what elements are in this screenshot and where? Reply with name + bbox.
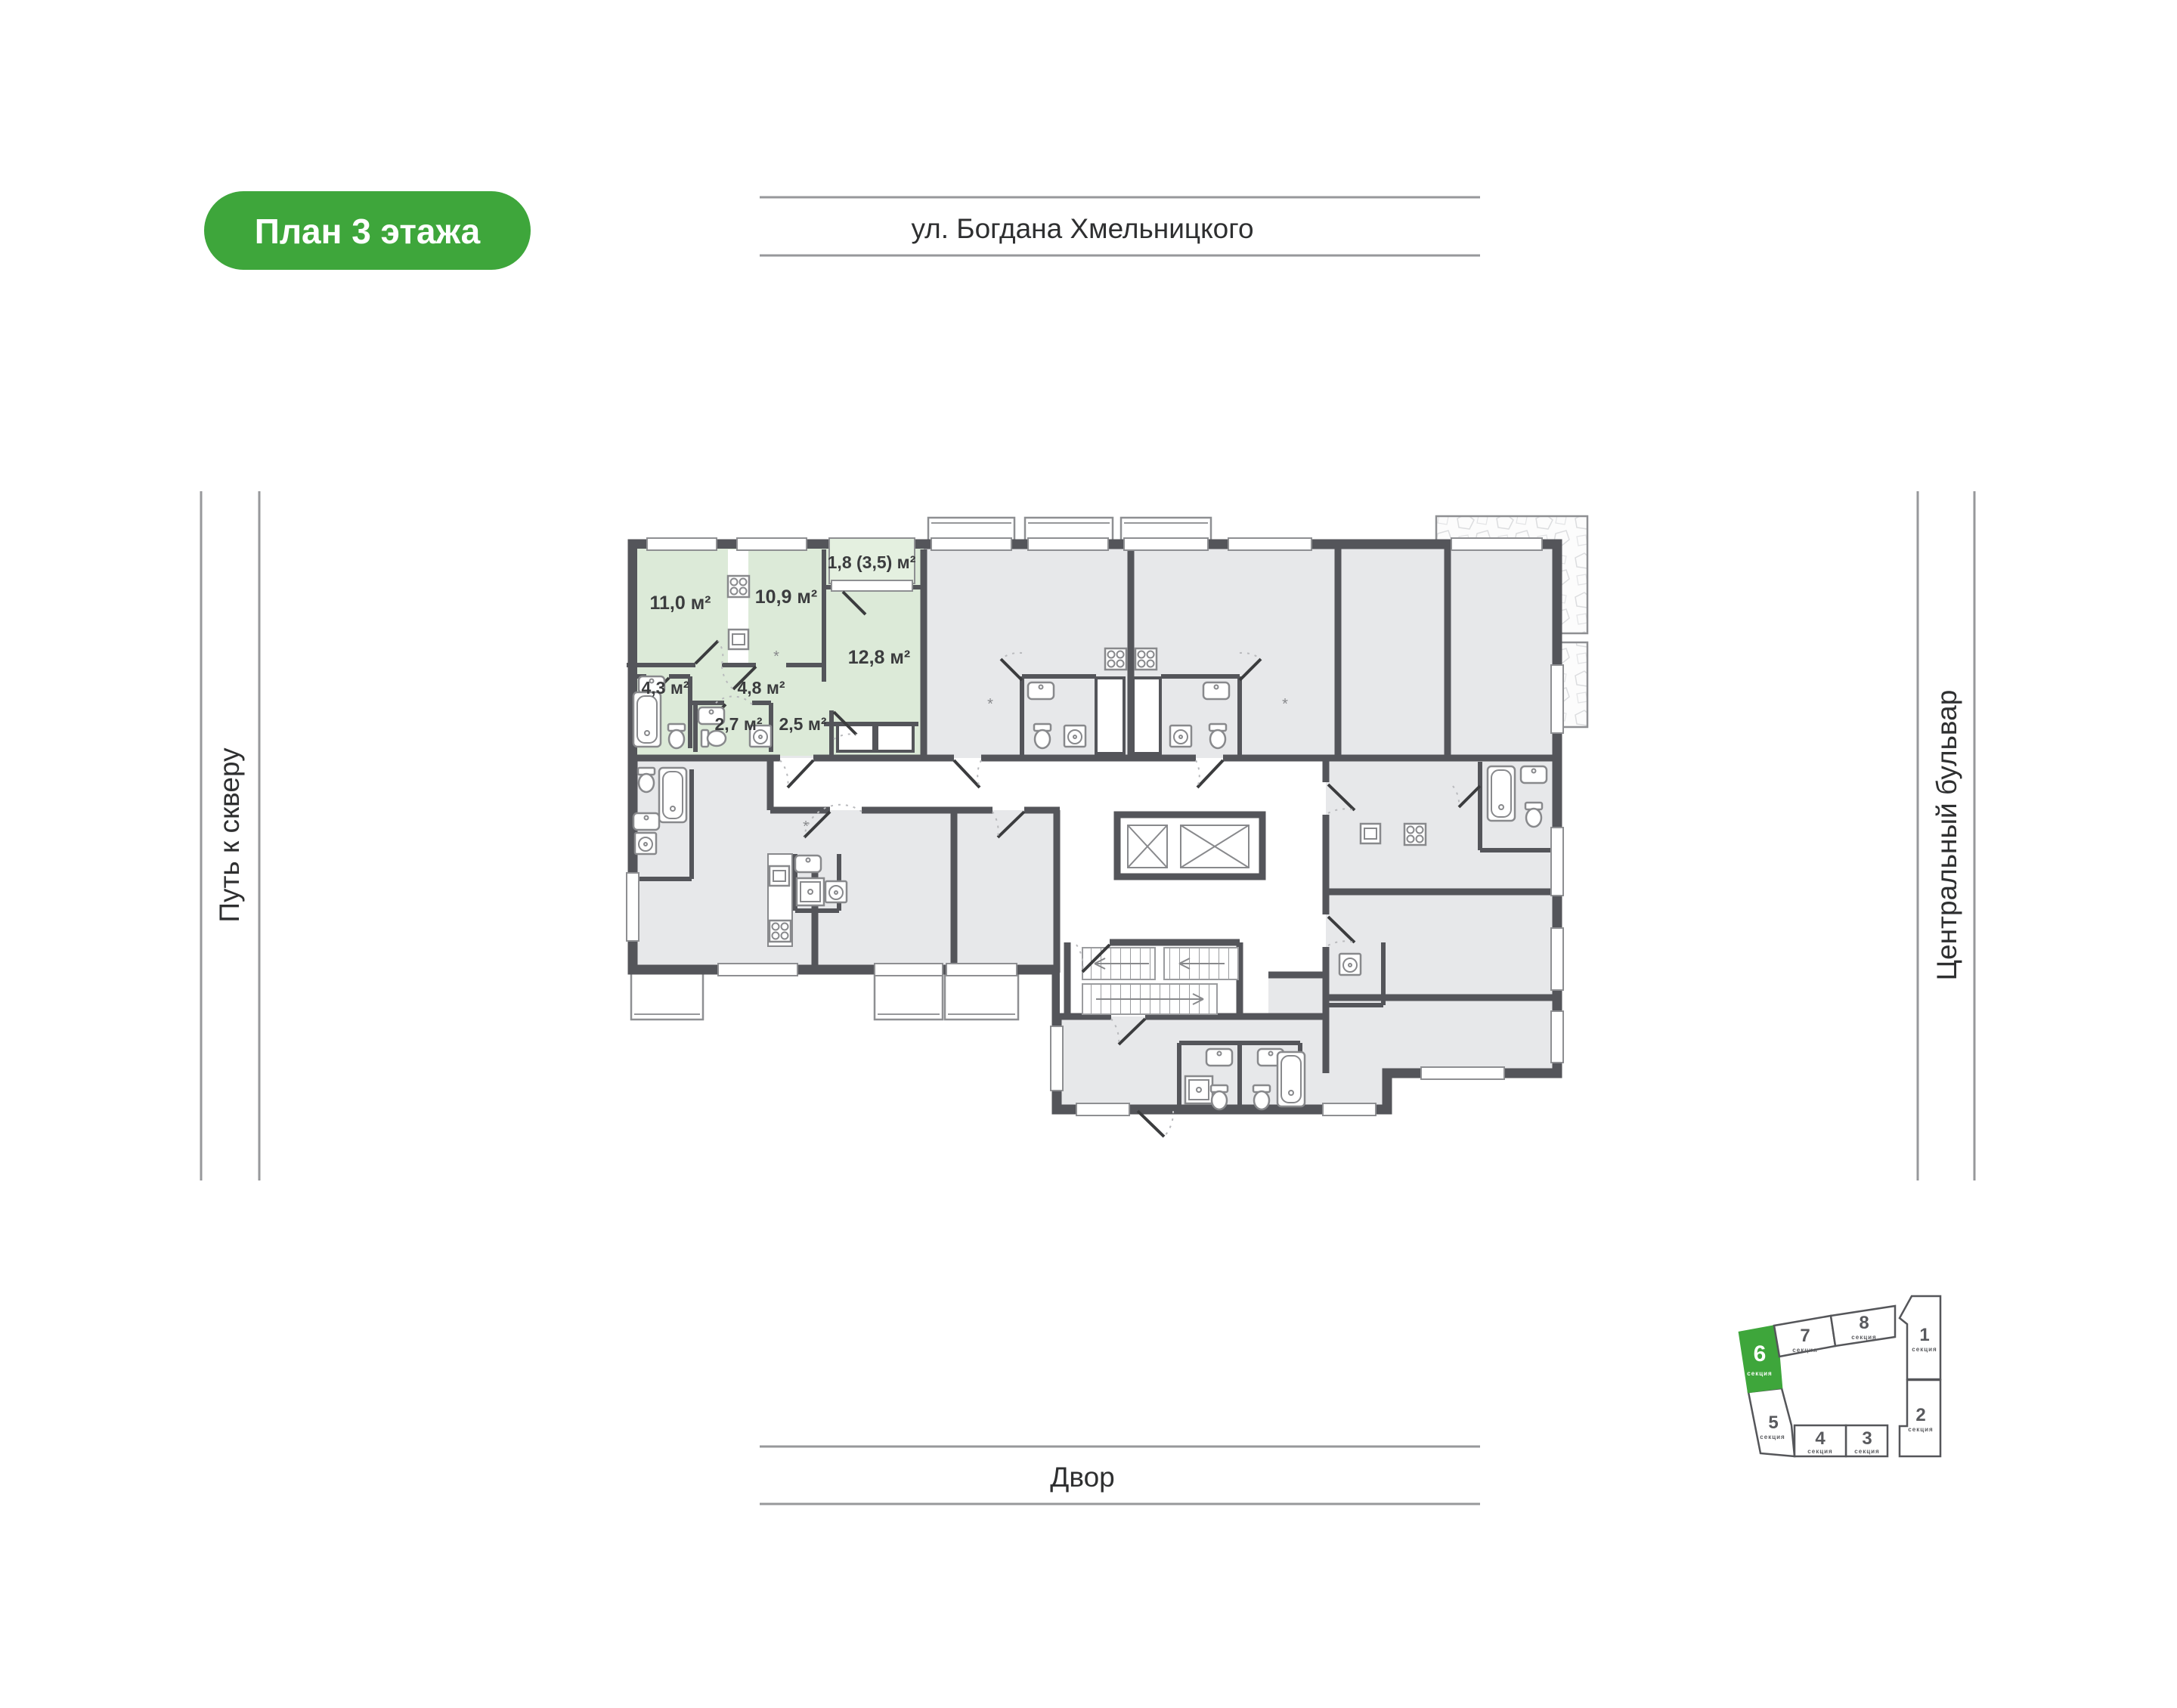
room-area-wc: 2,7 м² [714, 714, 762, 734]
svg-text:1: 1 [1919, 1325, 1929, 1345]
street-top-label: ул. Богдана Хмельницкого [911, 213, 1253, 244]
elevator-core [1117, 815, 1262, 877]
toilet-icon [1525, 803, 1542, 827]
svg-text:секция: секция [1792, 1347, 1817, 1354]
sink-icon [795, 856, 821, 872]
svg-text:4: 4 [1815, 1428, 1826, 1449]
svg-text:*: * [1282, 696, 1288, 713]
sink-icon [1521, 766, 1547, 783]
sink-icon [1028, 682, 1054, 699]
kitchen-sink-icon [729, 630, 748, 649]
svg-text:секция: секция [1908, 1426, 1933, 1433]
floor-badge-label: План 3 этажа [255, 212, 481, 251]
toilet-icon [1209, 724, 1226, 748]
floor-plan-canvas: План 3 этажа ул. Богдана Хмельницкого Дв… [0, 0, 2177, 1708]
sink-icon [1203, 682, 1229, 699]
room-area-kitchen: 10,9 м² [755, 586, 817, 608]
svg-text:секция: секция [1854, 1448, 1879, 1455]
svg-text:секция: секция [1747, 1370, 1772, 1377]
toilet-icon [638, 768, 655, 792]
sink-icon [1206, 1049, 1232, 1066]
stove-icon [1105, 648, 1126, 670]
floor-plan: * * * * 11,0 м² 10,9 м² 1,8 (3,5) м² 12,… [627, 516, 1587, 1137]
street-bottom-label: Двор [1050, 1462, 1114, 1493]
toilet-icon [668, 724, 685, 748]
bathtub-icon [659, 768, 686, 822]
svg-text:3: 3 [1862, 1428, 1872, 1449]
room-area-bathroom: 4,3 м² [641, 678, 689, 698]
room-area-living-2: 12,8 м² [848, 647, 910, 668]
room-area-hallway: 4,8 м² [737, 678, 785, 698]
washer-icon [825, 881, 847, 902]
stove-icon [770, 921, 791, 942]
street-left: Путь к скверу [201, 491, 259, 1180]
bathtub-icon [1277, 1052, 1305, 1106]
sink-icon [633, 813, 659, 830]
svg-text:секция: секция [1851, 1334, 1876, 1341]
street-right: Центральный бульвар [1918, 491, 1974, 1180]
street-right-label: Центральный бульвар [1931, 690, 1962, 981]
corridor-connector [1268, 758, 1326, 975]
room-area-hall: 2,5 м² [779, 714, 826, 734]
street-left-label: Путь к скверу [214, 747, 245, 923]
street-top: ул. Богдана Хмельницкого [760, 197, 1480, 255]
floor-badge: План 3 этажа [204, 191, 531, 270]
kitchen-sink-icon [1361, 824, 1380, 843]
kitchen-sink-icon [770, 866, 789, 886]
toilet-icon [1211, 1085, 1228, 1109]
washer-icon [1170, 726, 1191, 747]
washer-icon [1064, 726, 1085, 747]
toilet-icon [1034, 724, 1051, 748]
closet-1 [838, 724, 874, 751]
svg-text:*: * [803, 818, 809, 835]
washer-icon [1339, 954, 1361, 975]
bathtub-icon [1488, 766, 1515, 821]
shower-icon [797, 878, 824, 905]
stove-icon [1135, 648, 1157, 670]
svg-text:секция: секция [1760, 1434, 1785, 1440]
shower-icon [1185, 1076, 1212, 1103]
stove-icon [728, 576, 749, 597]
toilet-icon [1253, 1085, 1270, 1109]
svg-text:секция: секция [1912, 1346, 1937, 1353]
closet-2 [877, 724, 913, 751]
svg-text:2: 2 [1915, 1405, 1925, 1425]
section-map: 1 секция 2 секция 3 секция 4 секция 5 се… [1739, 1296, 1940, 1456]
street-bottom: Двор [760, 1447, 1480, 1504]
svg-text:*: * [773, 648, 779, 665]
room-area-balcony: 1,8 (3,5) м² [828, 552, 916, 572]
washer-icon [635, 833, 656, 854]
svg-text:секция: секция [1807, 1448, 1832, 1455]
svg-text:7: 7 [1800, 1326, 1810, 1346]
room-area-living-1: 11,0 м² [649, 593, 711, 614]
stove-icon [1404, 824, 1426, 845]
svg-text:6: 6 [1754, 1341, 1767, 1366]
bathtub-icon [633, 692, 661, 747]
svg-text:8: 8 [1859, 1313, 1869, 1333]
svg-text:5: 5 [1768, 1413, 1778, 1433]
corridor [770, 758, 1060, 810]
svg-text:*: * [987, 696, 993, 713]
floor-plan-page: План 3 этажа ул. Богдана Хмельницкого Дв… [0, 0, 2177, 1708]
